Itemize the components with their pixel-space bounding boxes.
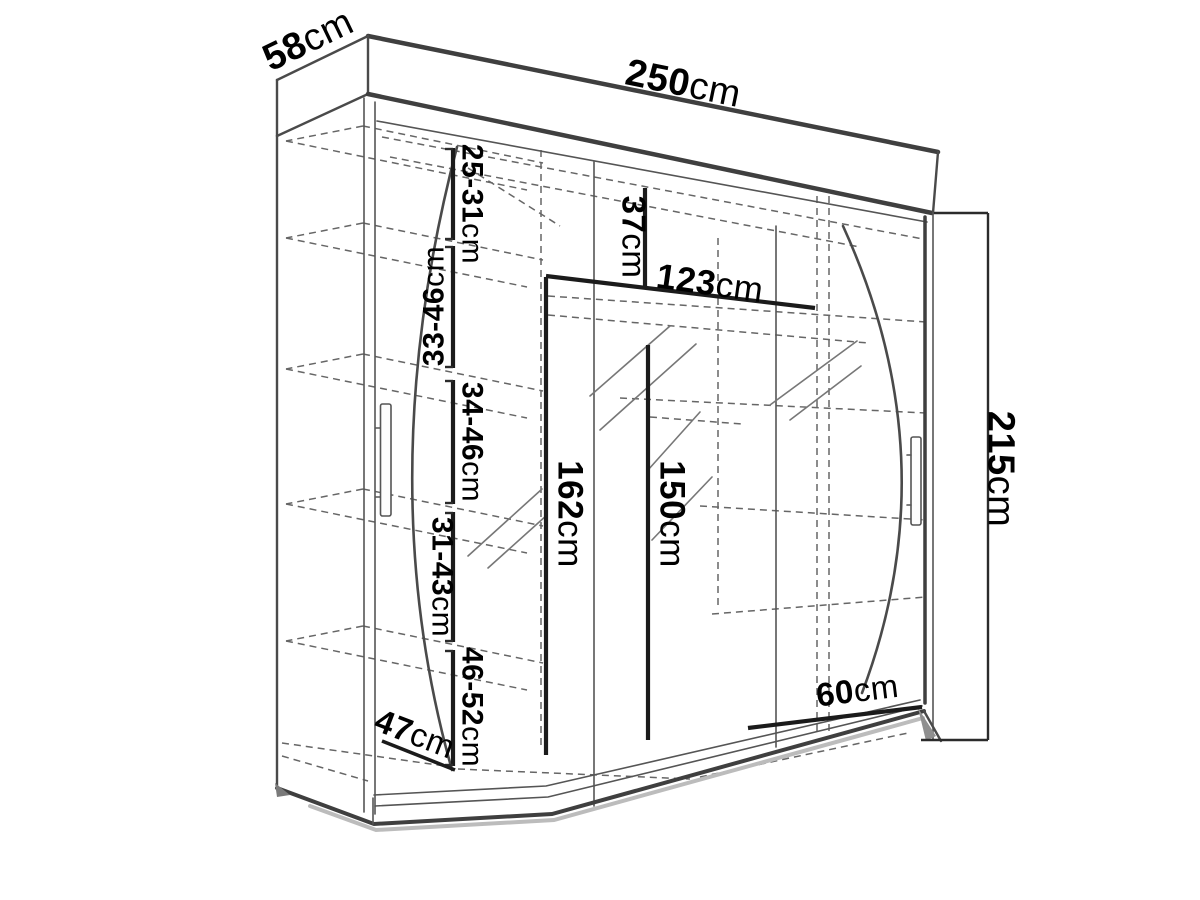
diagram-canvas: 58cm 250cm 215cm 25-31cm 33-46cm 34-46cm…	[0, 0, 1200, 900]
label-depth-58: 58cm	[256, 1, 360, 80]
right-door-arc	[843, 226, 902, 693]
label-top-37: 37cm	[615, 196, 652, 279]
label-gap-34-46: 34-46cm	[455, 382, 488, 502]
label-gap-33-46: 33-46cm	[418, 246, 451, 366]
label-gap-25-31: 25-31cm	[455, 144, 488, 264]
label-width-250: 250cm	[622, 52, 745, 116]
label-height-215: 215cm	[979, 411, 1021, 528]
label-height-162: 162cm	[550, 460, 589, 568]
label-gap-46-52: 46-52cm	[455, 647, 488, 767]
label-height-150: 150cm	[652, 460, 691, 568]
label-rail-123: 123cm	[654, 257, 766, 311]
right-door-handle	[911, 437, 921, 525]
left-door-handle	[381, 404, 392, 516]
wardrobe-dimension-diagram: 58cm 250cm 215cm 25-31cm 33-46cm 34-46cm…	[0, 0, 1200, 900]
label-bottom-60: 60cm	[814, 667, 901, 714]
dimension-labels: 58cm 250cm 215cm 25-31cm 33-46cm 34-46cm…	[256, 1, 1021, 767]
wardrobe-carcass	[275, 36, 941, 830]
label-gap-31-43: 31-43cm	[425, 517, 458, 637]
